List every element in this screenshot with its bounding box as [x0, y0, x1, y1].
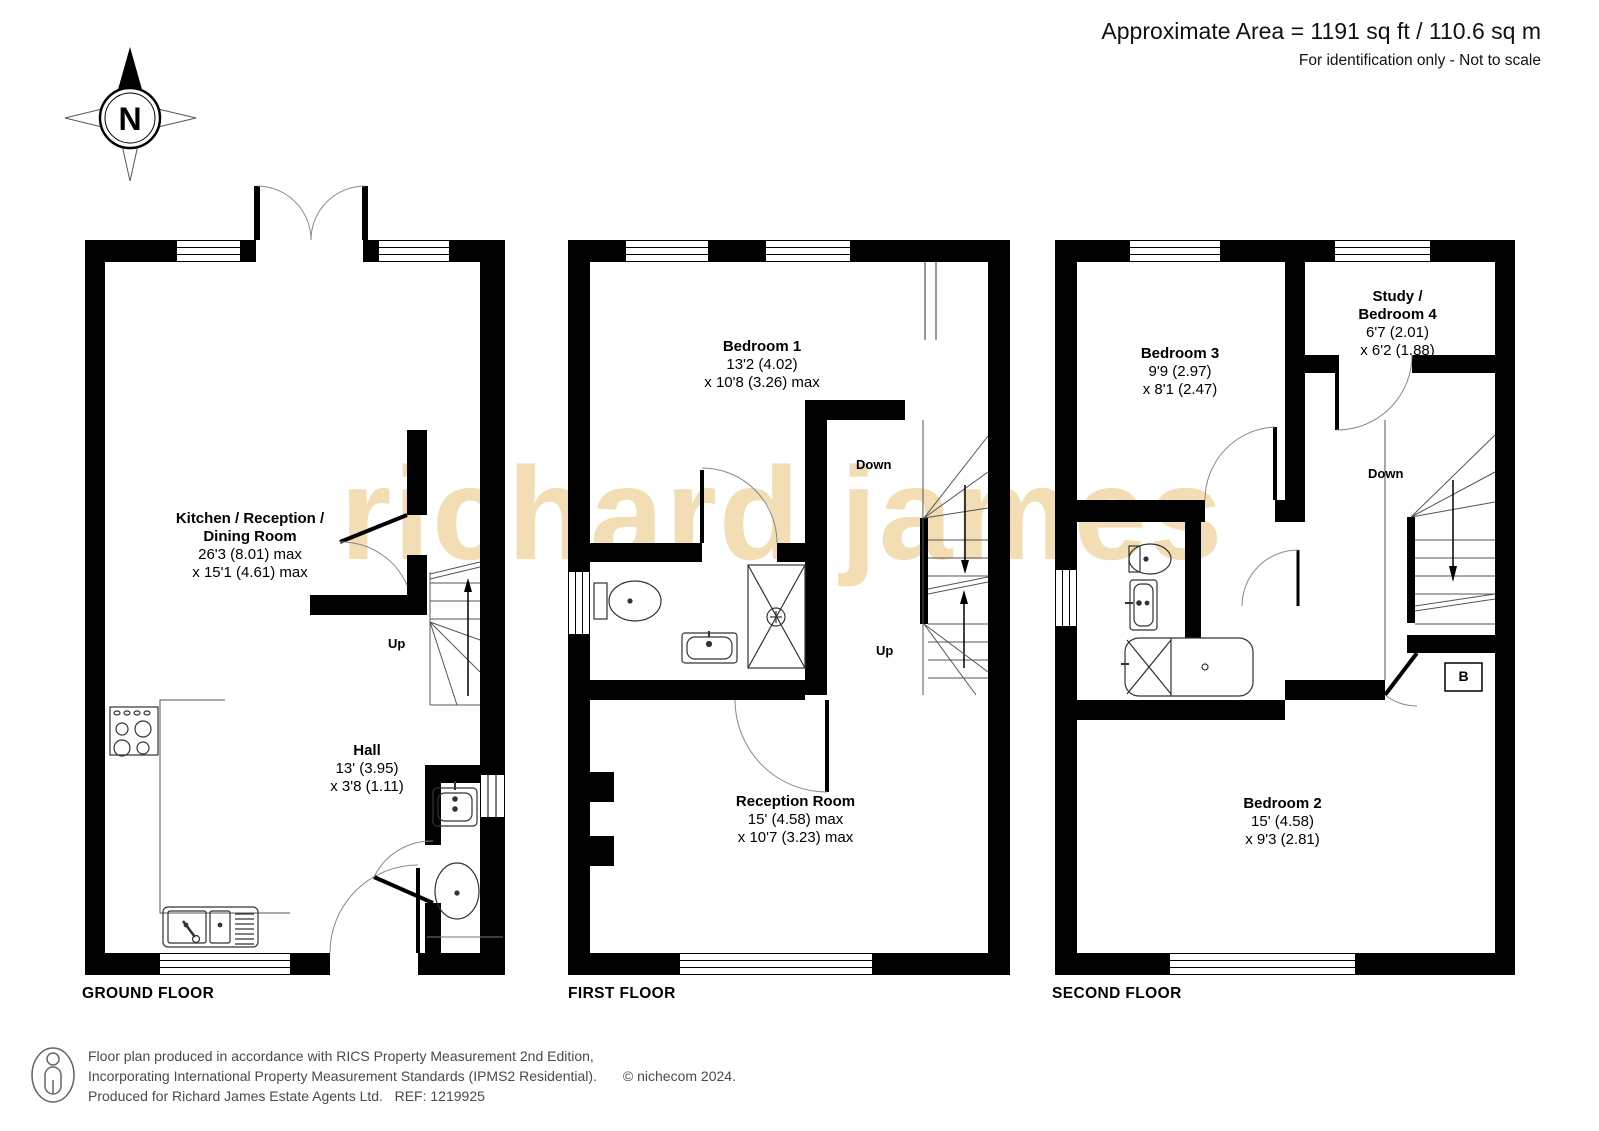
- room-label-bedroom3: Bedroom 3 9'9 (2.97) x 8'1 (2.47): [1080, 345, 1280, 399]
- second-floor-title: SECOND FLOOR: [1052, 985, 1182, 1003]
- floorplan-page: { "header": { "area": "Approximate Area …: [0, 0, 1599, 1131]
- room-label-hall: Hall 13' (3.95) x 3'8 (1.11): [307, 742, 427, 796]
- room-label-kitchen: Kitchen / Reception / Dining Room 26'3 (…: [110, 510, 390, 582]
- down-label: Down: [1368, 466, 1403, 481]
- room-dims: 6'7 (2.01): [1310, 324, 1485, 342]
- room-name: Bedroom 1: [642, 338, 882, 356]
- first-floor-title: FIRST FLOOR: [568, 985, 676, 1003]
- up-arrow-icon: [960, 590, 968, 604]
- room-dims: x 15'1 (4.61) max: [110, 564, 390, 582]
- room-dims: x 10'8 (3.26) max: [642, 374, 882, 392]
- room-name: Bedroom 3: [1080, 345, 1280, 363]
- person-icon: [30, 1046, 76, 1104]
- room-dims: 15' (4.58): [1180, 813, 1385, 831]
- room-dims: 26'3 (8.01) max: [110, 546, 390, 564]
- room-dims: x 6'2 (1.88): [1310, 342, 1485, 360]
- ground-floor-plan: Kitchen / Reception / Dining Room 26'3 (…: [85, 180, 505, 975]
- room-dims: x 10'7 (3.23) max: [673, 829, 918, 847]
- room-dims: 13' (3.95): [307, 760, 427, 778]
- room-name: Bedroom 2: [1180, 795, 1385, 813]
- room-dims: x 3'8 (1.11): [307, 778, 427, 796]
- second-floor-plan: Bedroom 3 9'9 (2.97) x 8'1 (2.47) Study …: [1055, 240, 1515, 975]
- stairwell-window: [925, 262, 936, 340]
- footer: Floor plan produced in accordance with R…: [30, 1046, 736, 1106]
- room-name: Study /: [1310, 288, 1485, 306]
- ground-floor-stairs: [430, 562, 480, 705]
- shower-icon: [748, 565, 805, 668]
- room-name: Hall: [307, 742, 427, 760]
- disclaimer-text: For identification only - Not to scale: [1299, 52, 1541, 70]
- up-label: Up: [876, 643, 893, 658]
- footer-line-2-text: Incorporating International Property Mea…: [88, 1068, 597, 1084]
- boiler-label: B: [1445, 668, 1482, 684]
- toilet-icon: [1129, 544, 1171, 574]
- room-dims: x 8'1 (2.47): [1080, 381, 1280, 399]
- room-label-bedroom2: Bedroom 2 15' (4.58) x 9'3 (2.81): [1180, 795, 1385, 849]
- room-dims: 15' (4.58) max: [673, 811, 918, 829]
- room-dims: x 9'3 (2.81): [1180, 831, 1385, 849]
- toilet-icon: [594, 581, 661, 621]
- ground-floor-walls: [85, 240, 505, 975]
- room-label-reception: Reception Room 15' (4.58) max x 10'7 (3.…: [673, 793, 918, 847]
- room-name: Dining Room: [110, 528, 390, 546]
- ground-floor-title: GROUND FLOOR: [82, 985, 214, 1003]
- footer-line-1: Floor plan produced in accordance with R…: [88, 1046, 736, 1066]
- footer-line-3: Produced for Richard James Estate Agents…: [88, 1086, 736, 1106]
- room-name: Reception Room: [673, 793, 918, 811]
- down-arrow-icon: [961, 560, 969, 574]
- kitchen-counter: [160, 700, 290, 913]
- footer-text: Floor plan produced in accordance with R…: [88, 1046, 736, 1106]
- bathroom-sink-icon: [1125, 580, 1157, 630]
- bath-icon: [1121, 638, 1253, 696]
- down-label: Down: [856, 457, 891, 472]
- footer-line-2: Incorporating International Property Mea…: [88, 1066, 736, 1086]
- room-name: Bedroom 4: [1310, 306, 1485, 324]
- french-doors: [254, 186, 368, 240]
- compass-north-label: N: [118, 101, 141, 137]
- hob-icon: [110, 707, 158, 756]
- wc-toilet-icon: [435, 863, 479, 919]
- up-label: Up: [388, 636, 405, 651]
- copyright-text: © nichecom 2024.: [623, 1068, 736, 1084]
- room-label-study: Study / Bedroom 4 6'7 (2.01) x 6'2 (1.88…: [1310, 288, 1485, 360]
- first-floor-plan: Bedroom 1 13'2 (4.02) x 10'8 (3.26) max …: [568, 240, 1010, 975]
- bathroom-sink-icon: [682, 631, 737, 663]
- compass-icon: N: [63, 45, 198, 185]
- down-arrow-icon: [1449, 566, 1457, 582]
- up-arrow-icon: [464, 578, 472, 592]
- room-dims: 9'9 (2.97): [1080, 363, 1280, 381]
- room-name: Kitchen / Reception /: [110, 510, 390, 528]
- first-floor-stairs: [923, 420, 988, 695]
- approximate-area-text: Approximate Area = 1191 sq ft / 110.6 sq…: [1101, 18, 1541, 45]
- room-label-bedroom1: Bedroom 1 13'2 (4.02) x 10'8 (3.26) max: [642, 338, 882, 392]
- room-dims: 13'2 (4.02): [642, 356, 882, 374]
